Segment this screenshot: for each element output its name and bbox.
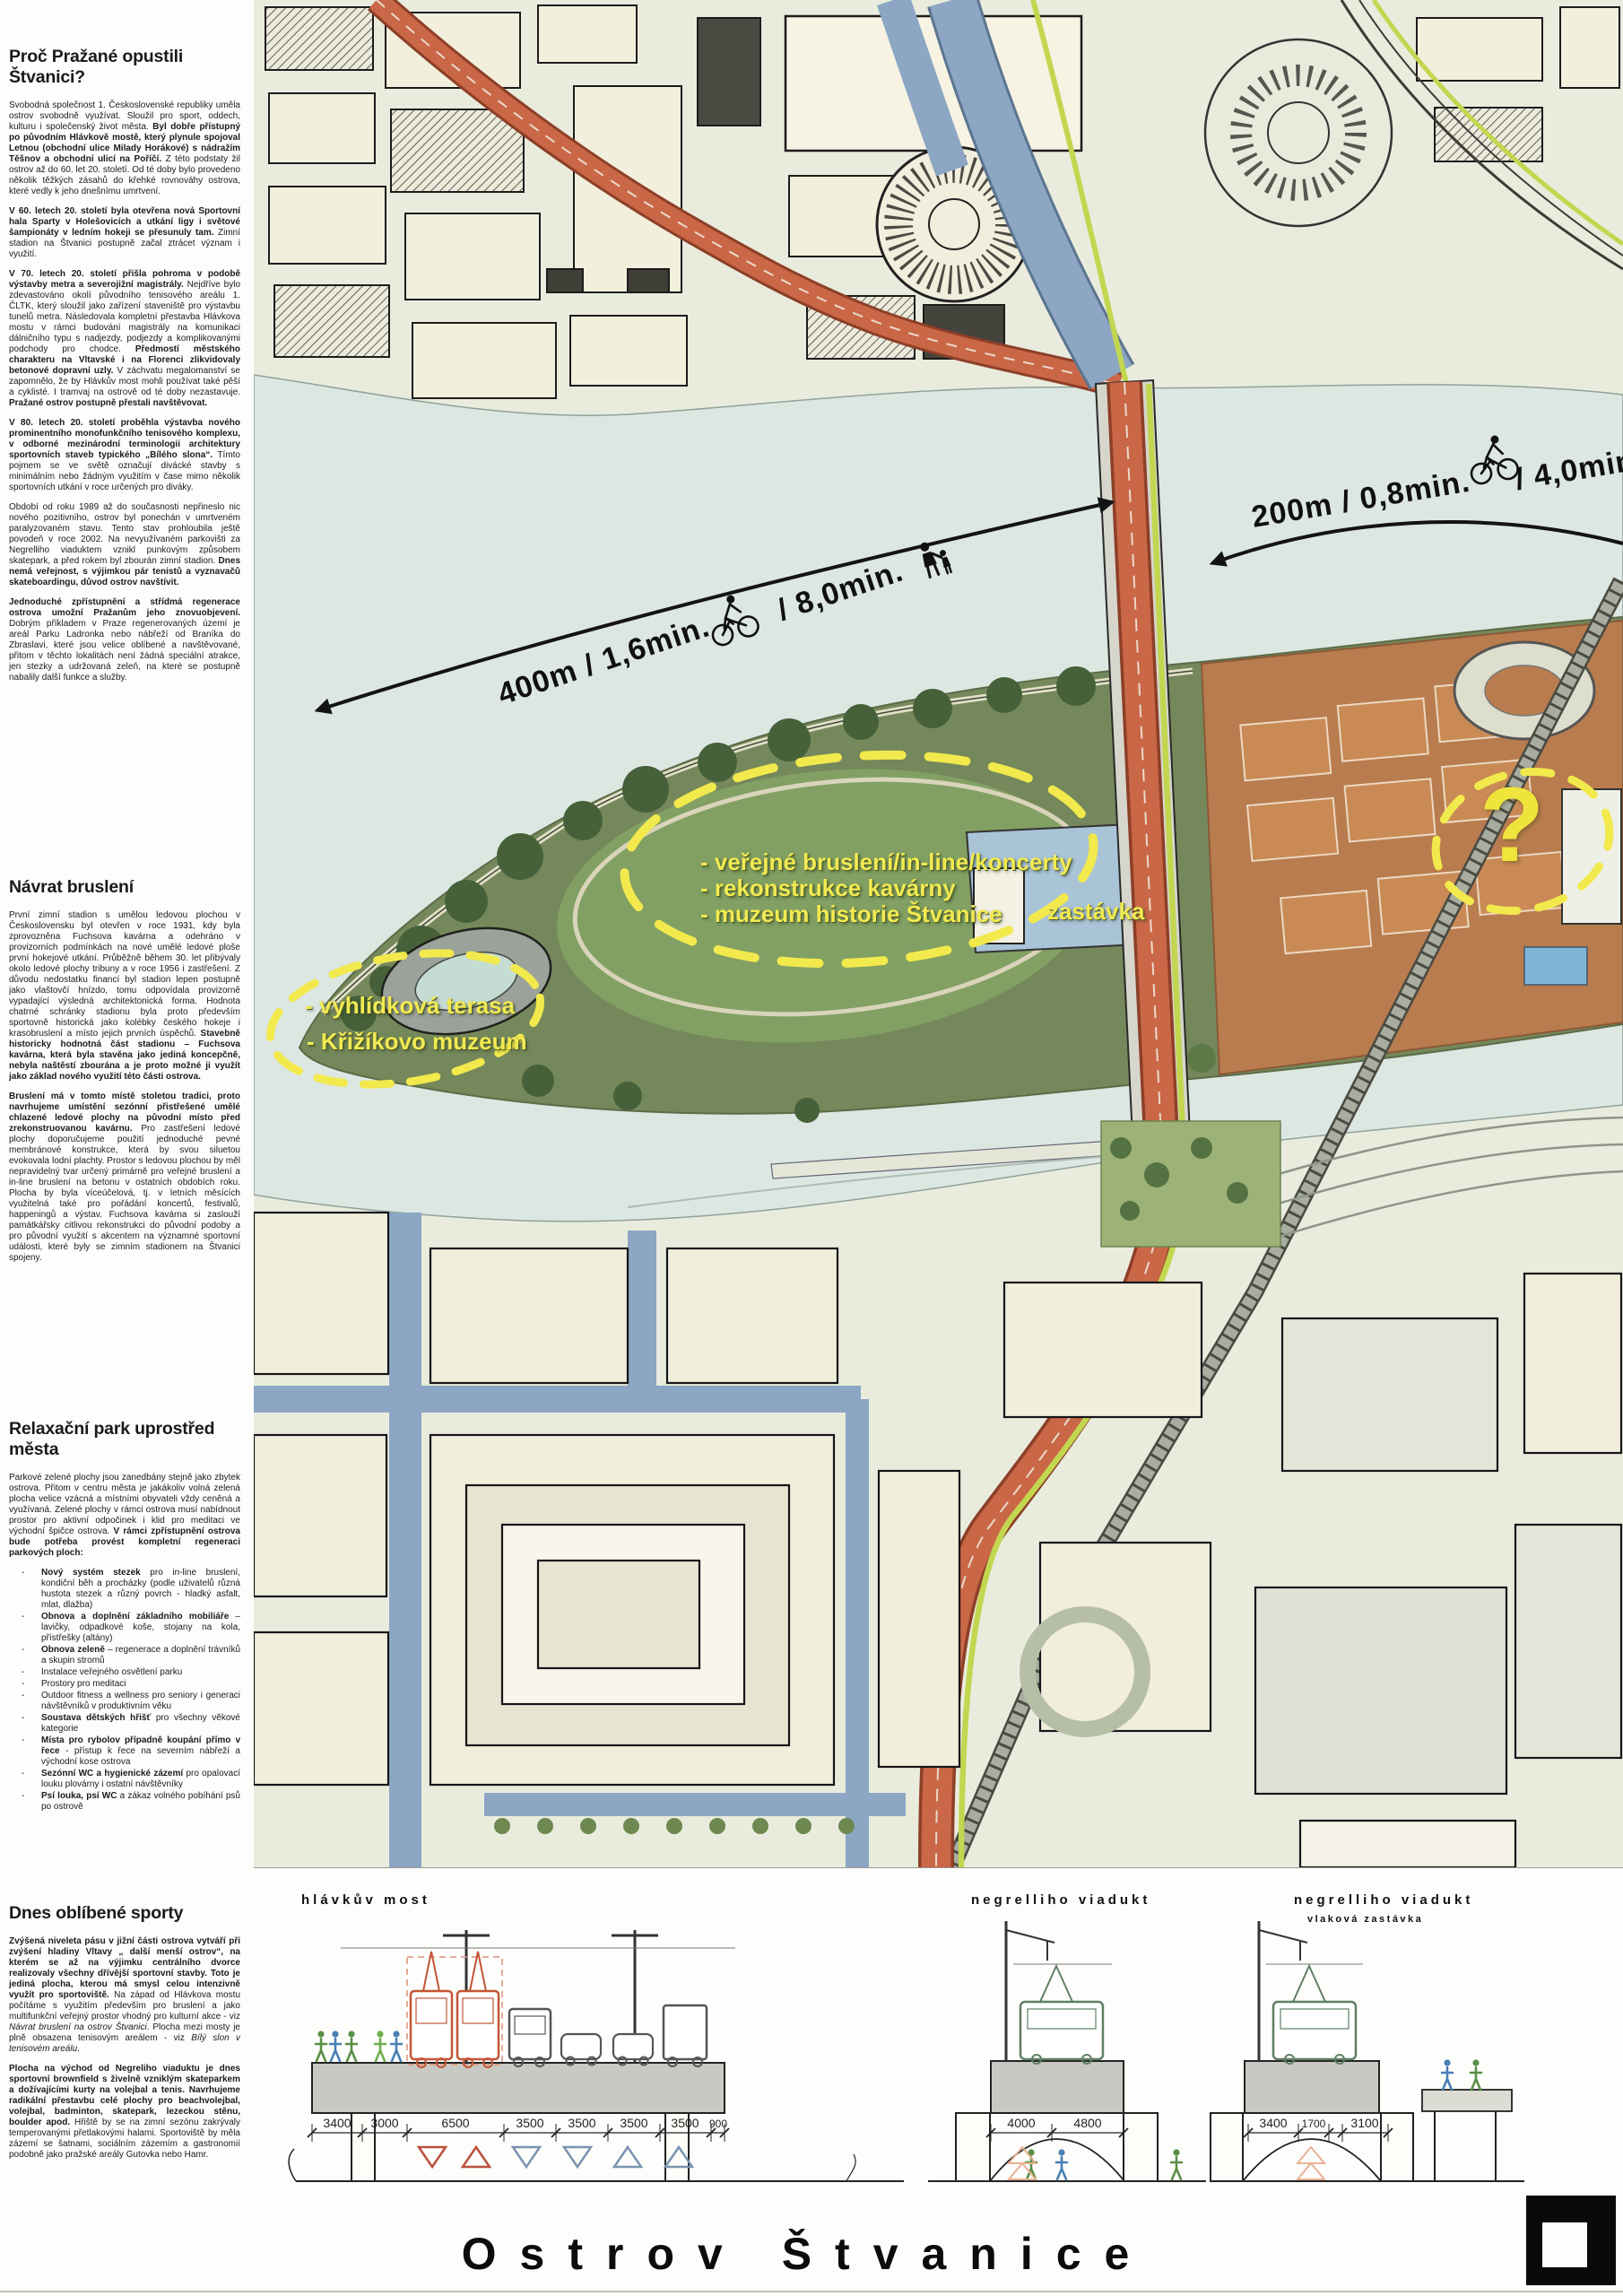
paragraph: Svobodná společnost 1. Československé re…: [9, 100, 240, 197]
section-skating-return: Návrat bruslení První zimní stadion s um…: [9, 877, 240, 1417]
map-label-krizik-museum: - Křižíkovo muzeum: [307, 1028, 527, 1056]
list-item: Soustava dětských hřišť pro všechny věko…: [41, 1713, 240, 1735]
dim-value: 3400: [323, 2116, 351, 2130]
platform: [1422, 2059, 1512, 2181]
dim-value: 4800: [1073, 2116, 1101, 2130]
section-hlavkuv-most: 3400 3000 6500 3500 3500 3500 3500 900: [289, 1930, 904, 2181]
footer-divider: [0, 2291, 1623, 2292]
paragraph: Plocha na východ od Negreliho viaduktu j…: [9, 2064, 240, 2161]
paragraph: Jednoduché zpřístupnění a střídmá regene…: [9, 597, 240, 683]
map-label-museum: - muzeum historie Štvanice: [700, 900, 1002, 928]
list-item: Obnova zeleně – regenerace a doplnění tr…: [41, 1645, 240, 1666]
logo-inner-square: [1542, 2222, 1587, 2267]
paragraph: Zvýšená niveleta pásu v jižní části ostr…: [9, 1936, 240, 2055]
truck-icon: [664, 2005, 707, 2066]
section-popular-sports: Dnes oblíbené sporty Zvýšená niveleta pá…: [9, 1903, 240, 2294]
dim-value: 4000: [1007, 2116, 1035, 2130]
dim-value: 6500: [441, 2116, 469, 2130]
dim-value: 3500: [620, 2116, 647, 2130]
dim-value: 1700: [1302, 2118, 1326, 2130]
section-why-prague-left: Proč Pražané opustili Štvanici? Svobodná…: [9, 47, 240, 877]
paragraph: Bruslení má v tomto místě stoletou tradi…: [9, 1091, 240, 1264]
list-item: Nový systém stezek pro in-line bruslení,…: [41, 1568, 240, 1611]
section-negrelli-viadukt: 4000 4800: [928, 1921, 1206, 2181]
list-item: Sezónní WC a hygienické zázemí pro opalo…: [41, 1769, 240, 1790]
list-item: Prostory pro meditaci: [41, 1679, 240, 1690]
list-item: Obnova a doplnění základního mobiliáře –…: [41, 1612, 240, 1644]
train-icon: [1020, 1966, 1103, 2064]
dim-value: 3100: [1350, 2116, 1378, 2130]
section-heading: Relaxační park uprostřed města: [9, 1419, 240, 1460]
list-item: Instalace veřejného osvětlení parku: [41, 1667, 240, 1678]
car-icon: [561, 2034, 601, 2066]
section-negrelli-stop: 3400 1700 3100: [1211, 1921, 1524, 2181]
dim-value: 3500: [568, 2116, 595, 2130]
street-trees: [494, 1818, 855, 1834]
dim-value: 3500: [516, 2116, 543, 2130]
cross-sections-drawing: 3400 3000 6500 3500 3500 3500 3500 900: [269, 1867, 1533, 2208]
tram-icon: [457, 1952, 499, 2067]
list-item: Psí louka, psí WC a zákaz volného pobíhá…: [41, 1791, 240, 1813]
dim-value: 900: [709, 2118, 727, 2130]
section-relax-park: Relaxační park uprostřed města Parkové z…: [9, 1419, 240, 1903]
paragraph: Období od roku 1989 až do současnosti ne…: [9, 502, 240, 588]
map-label-skating: - veřejné bruslení/in-line/koncerty: [700, 848, 1072, 876]
list-item: Místa pro rybolov případně koupání přímo…: [41, 1735, 240, 1768]
section-heading: Dnes oblíbené sporty: [9, 1903, 240, 1924]
map-label-cafe: - rekonstrukce kavárny: [700, 874, 956, 902]
paragraph: Parkové zelené plochy jsou zanedbány ste…: [9, 1473, 240, 1559]
regeneration-list: Nový systém stezek pro in-line bruslení,…: [9, 1568, 240, 1813]
paragraph: První zimní stadion s umělou ledovou plo…: [9, 910, 240, 1083]
map-question-mark: ?: [1480, 764, 1544, 886]
site-plan-map: 400m / 1,6min. / 8,0min. 200m / 0,8min. …: [254, 0, 1623, 1868]
poster-page: Proč Pražané opustili Štvanici? Svobodná…: [0, 0, 1623, 2296]
park-east-of-bridge: [1101, 1121, 1280, 1247]
direction-triangles: [1298, 2147, 1324, 2179]
pedestrian-figures: [316, 2031, 402, 2061]
studio-logo: [1526, 2196, 1616, 2285]
section-heading: Návrat bruslení: [9, 877, 240, 898]
dim-value: 3000: [370, 2116, 398, 2130]
lane-direction-triangles: [419, 2147, 692, 2167]
bus-icon: [509, 2009, 551, 2066]
tram-icon: [411, 1952, 452, 2067]
map-label-stop: zastávka: [1047, 898, 1144, 926]
section-heading: Proč Pražané opustili Štvanici?: [9, 47, 240, 88]
paragraph: V 70. letech 20. století přišla pohroma …: [9, 269, 240, 409]
list-item: Outdoor fitness a wellness pro seniory i…: [41, 1691, 240, 1712]
dim-value: 3400: [1259, 2116, 1287, 2130]
dim-value: 3500: [671, 2116, 699, 2130]
map-label-terrace: - vyhlídková terasa: [305, 992, 515, 1020]
poster-title: Ostrov Štvanice: [305, 2228, 1309, 2280]
paragraph: V 80. letech 20. století proběhla výstav…: [9, 418, 240, 493]
car-icon: [613, 2034, 653, 2066]
paragraph: V 60. letech 20. století byla otevřena n…: [9, 206, 240, 260]
train-icon: [1273, 1966, 1356, 2064]
